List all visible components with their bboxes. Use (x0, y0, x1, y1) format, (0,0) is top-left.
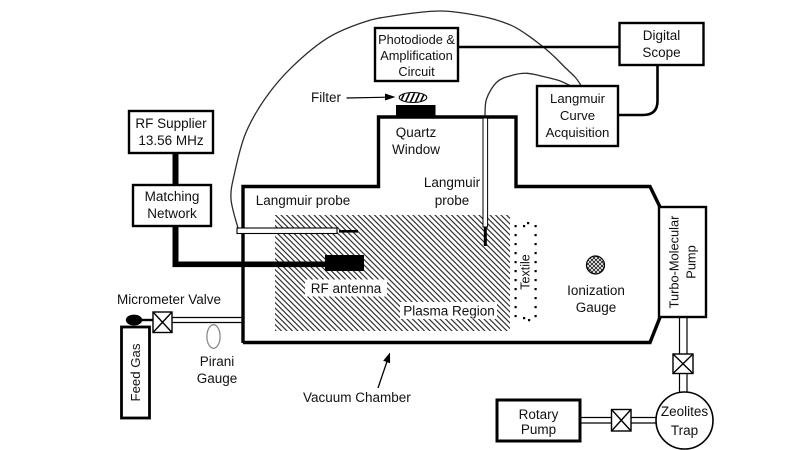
svg-text:Matching: Matching (145, 189, 200, 204)
svg-text:Pump: Pump (684, 245, 699, 278)
svg-text:Vacuum Chamber: Vacuum Chamber (303, 390, 411, 405)
svg-text:Circuit: Circuit (398, 64, 435, 79)
svg-text:Trap: Trap (671, 423, 698, 438)
svg-text:Langmuir: Langmuir (550, 91, 606, 106)
svg-text:Network: Network (147, 206, 197, 221)
svg-text:13.56 MHz: 13.56 MHz (138, 133, 204, 148)
svg-text:Gauge: Gauge (576, 300, 617, 315)
svg-text:Pirani: Pirani (200, 354, 235, 369)
svg-text:Rotary: Rotary (519, 407, 559, 422)
svg-text:Micrometer Valve: Micrometer Valve (117, 292, 221, 307)
svg-text:Window: Window (392, 142, 440, 157)
svg-text:Filter: Filter (311, 90, 342, 105)
svg-text:Feed Gas: Feed Gas (128, 343, 143, 401)
svg-text:Curve: Curve (560, 108, 595, 123)
svg-text:Zeolites: Zeolites (661, 404, 709, 419)
svg-text:probe: probe (435, 193, 470, 208)
svg-text:RF antenna: RF antenna (311, 281, 382, 296)
svg-text:Ionization: Ionization (567, 283, 625, 298)
svg-text:Turbo-Molecular: Turbo-Molecular (667, 215, 682, 308)
svg-text:Gauge: Gauge (197, 371, 238, 386)
svg-text:Plasma Region: Plasma Region (403, 304, 495, 319)
svg-text:Langmuir: Langmuir (424, 175, 481, 190)
svg-text:Textile: Textile (519, 254, 533, 289)
svg-text:RF Supplier: RF Supplier (135, 116, 207, 131)
svg-text:Amplification: Amplification (380, 48, 453, 63)
svg-text:Digital: Digital (643, 28, 681, 43)
svg-text:Quartz: Quartz (396, 125, 437, 140)
svg-text:Scope: Scope (642, 45, 680, 60)
svg-text:Pump: Pump (521, 422, 556, 437)
svg-text:Acquisition: Acquisition (546, 125, 610, 140)
svg-text:Photodiode &: Photodiode & (378, 32, 455, 47)
svg-text:Langmuir probe: Langmuir probe (256, 193, 351, 208)
